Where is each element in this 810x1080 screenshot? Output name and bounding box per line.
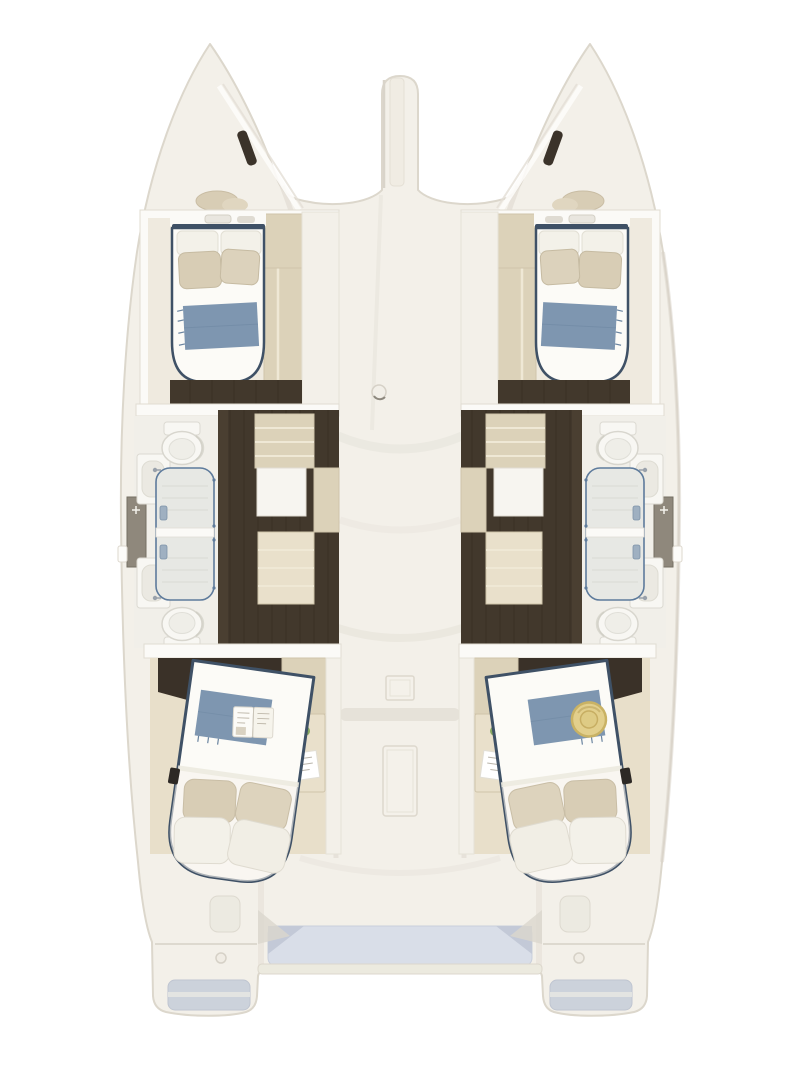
cockpit-recessed-floor — [268, 926, 532, 966]
cockpit-aft-lip — [258, 964, 542, 974]
catamaran-floorplan — [0, 0, 810, 1080]
floorplan-figure — [0, 0, 810, 1080]
bowsprit-channel — [390, 78, 404, 186]
square-deck-hatch — [386, 676, 414, 700]
open-book — [230, 703, 277, 743]
long-deck-hatch — [383, 746, 417, 816]
book-picture — [236, 727, 246, 735]
step-shadow — [340, 708, 460, 721]
anchor-deck-filler — [372, 385, 386, 399]
